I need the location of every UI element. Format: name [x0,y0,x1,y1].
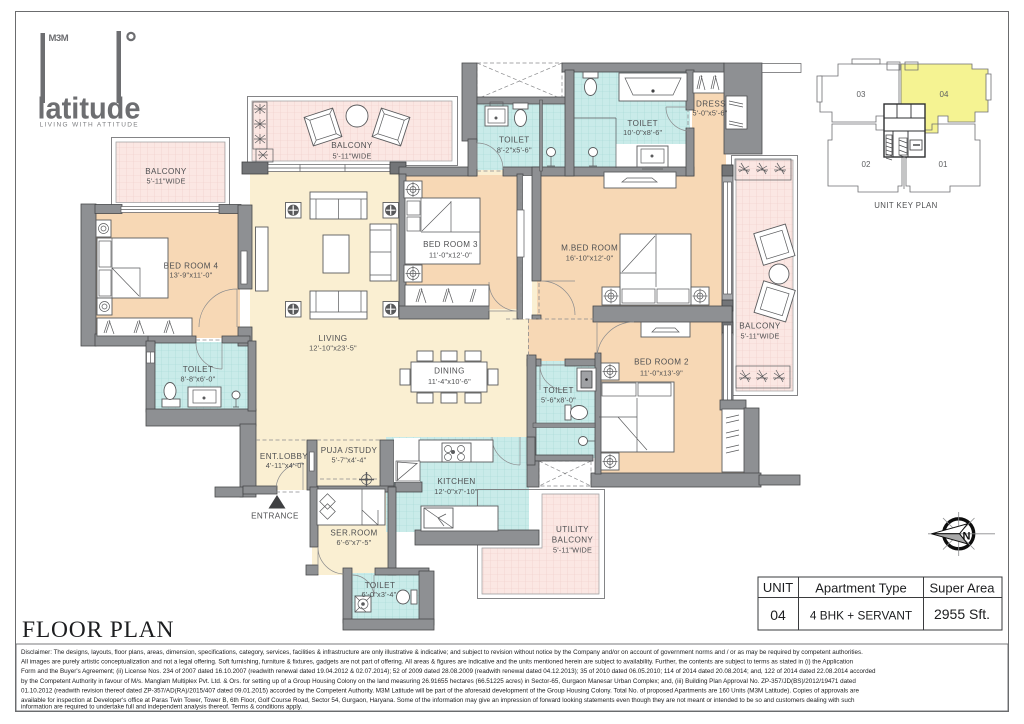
svg-text:LIVING WITH ATTITUDE: LIVING WITH ATTITUDE [40,122,139,129]
svg-text:2955 Sft.: 2955 Sft. [934,606,990,622]
svg-text:12'-0"x7'-10": 12'-0"x7'-10" [434,487,478,496]
svg-text:5'-11"WIDE: 5'-11"WIDE [553,545,592,554]
svg-text:UTILITY: UTILITY [556,525,589,534]
svg-text:BED ROOM 4: BED ROOM 4 [164,262,219,271]
svg-text:TOILET: TOILET [499,136,530,145]
svg-text:11'-0"x12'-0": 11'-0"x12'-0" [429,250,472,259]
svg-text:Disclaimer: The designs, layou: Disclaimer: The designs, layouts, floor … [21,649,863,656]
svg-text:Apartment Type: Apartment Type [815,581,907,596]
svg-text:UNIT KEY PLAN: UNIT KEY PLAN [874,201,937,210]
svg-text:KITCHEN: KITCHEN [437,477,475,486]
svg-text:4'-11"x4'-0": 4'-11"x4'-0" [266,461,305,470]
svg-text:N: N [963,531,971,543]
svg-text:ENTRANCE: ENTRANCE [251,511,299,520]
svg-text:BALCONY: BALCONY [552,535,594,544]
svg-text:5'-11"WIDE: 5'-11"WIDE [740,332,779,341]
svg-text:BALCONY: BALCONY [331,141,373,150]
svg-text:6'-6"x7'-5": 6'-6"x7'-5" [337,538,372,547]
svg-text:11'-0"x13'-9": 11'-0"x13'-9" [640,368,683,377]
svg-text:Super Area: Super Area [929,581,995,596]
svg-text:TOILET: TOILET [365,581,396,590]
svg-text:TOILET: TOILET [543,386,574,395]
svg-text:6'-0"x3'-4": 6'-0"x3'-4" [362,590,397,599]
svg-text:01.10.2012 (readwith revision: 01.10.2012 (readwith revision thereof da… [21,687,860,694]
svg-text:PUJA /STUDY: PUJA /STUDY [321,446,378,455]
svg-text:DRESS: DRESS [696,100,726,109]
svg-text:5'-0"x5'-6": 5'-0"x5'-6" [693,109,728,118]
svg-text:5'-11"WIDE: 5'-11"WIDE [146,176,185,185]
svg-text:All images are purely artistic: All images are purely artistic conceptua… [21,659,854,666]
svg-text:4 BHK + SERVANT: 4 BHK + SERVANT [810,609,912,623]
svg-text:by the Competent Authority in: by the Competent Authority in favour of … [21,678,856,685]
svg-text:5'-6"x8'-0": 5'-6"x8'-0" [541,395,576,404]
svg-text:BALCONY: BALCONY [145,167,187,176]
svg-text:11'-4"x10'-6": 11'-4"x10'-6" [428,377,471,386]
svg-text:12'-10"x23'-5": 12'-10"x23'-5" [309,344,357,353]
svg-text:8'-2"x5'-6": 8'-2"x5'-6" [497,145,532,154]
svg-text:BED ROOM 2: BED ROOM 2 [634,358,689,367]
svg-text:DINING: DINING [434,367,465,376]
svg-text:8'-8"x6'-0": 8'-8"x6'-0" [181,374,216,383]
svg-text:5'-11"WIDE: 5'-11"WIDE [332,151,371,160]
svg-text:03: 03 [857,90,866,99]
svg-text:04: 04 [940,90,949,99]
svg-text:information are required to un: information are required to undertake fu… [21,704,302,711]
svg-text:02: 02 [862,160,871,169]
svg-text:ENT.LOBBY: ENT.LOBBY [260,452,308,461]
svg-text:BED ROOM 3: BED ROOM 3 [423,240,478,249]
svg-text:M3M: M3M [49,33,69,44]
svg-text:LIVING: LIVING [319,334,348,343]
svg-text:01: 01 [939,160,948,169]
svg-text:5'-7"x4'-4": 5'-7"x4'-4" [332,456,367,465]
svg-text:SER.ROOM: SER.ROOM [330,529,377,538]
svg-text:BALCONY: BALCONY [739,322,781,331]
svg-text:04: 04 [770,607,786,623]
svg-text:FLOOR PLAN: FLOOR PLAN [22,617,174,643]
svg-text:13'-9"x11'-0": 13'-9"x11'-0" [170,271,213,280]
svg-text:M.BED ROOM: M.BED ROOM [561,243,618,252]
svg-text:Form and the Buyer's Agreement: Form and the Buyer's Agreement; (ii) Lic… [21,668,876,675]
svg-text:10'-0"x8'-6": 10'-0"x8'-6" [623,128,662,137]
svg-text:UNIT: UNIT [763,580,793,595]
svg-text:TOILET: TOILET [627,119,658,128]
svg-text:TOILET: TOILET [183,365,214,374]
svg-text:16'-10"x12'-0": 16'-10"x12'-0" [566,253,614,262]
